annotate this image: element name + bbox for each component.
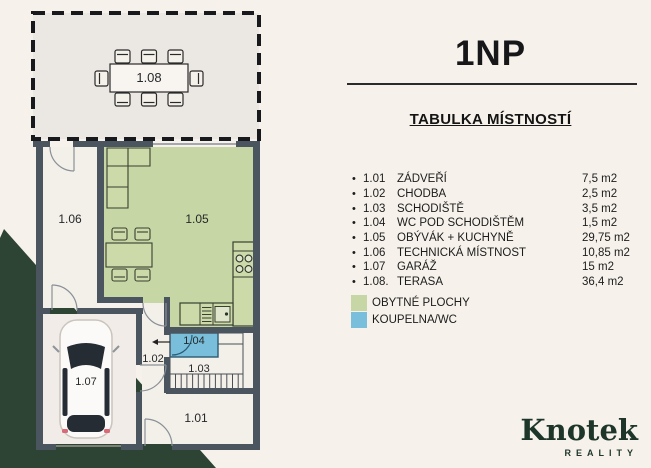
- table-row: • 1.07 GARÁŽ 15 m2: [352, 260, 643, 275]
- page-title: 1NP: [330, 36, 651, 71]
- table-row: • 1.04 WC POD SCHODIŠTĚM 1,5 m2: [352, 216, 643, 231]
- room-area: 2,5 m2: [582, 188, 651, 200]
- room-name: TECHNICKÁ MÍSTNOST: [397, 247, 582, 259]
- brand-subtitle: REALITY: [520, 448, 638, 458]
- table-row: • 1.06 TECHNICKÁ MÍSTNOST 10,85 m2: [352, 245, 643, 260]
- room-number: 1.08.: [363, 276, 397, 288]
- bullet-icon: •: [352, 276, 363, 288]
- room-number: 1.01: [363, 173, 397, 185]
- room-area: 10,85 m2: [582, 247, 651, 259]
- room-area: 29,75 m2: [582, 232, 651, 244]
- room-number: 1.07: [363, 261, 397, 273]
- title-divider: [347, 83, 637, 85]
- page: 1.08: [0, 0, 651, 468]
- room-name: TERASA: [397, 276, 582, 288]
- room-number: 1.05: [363, 232, 397, 244]
- label-wc: 1.04: [183, 335, 204, 347]
- bullet-icon: •: [352, 217, 363, 229]
- room-area: 7,5 m2: [582, 173, 651, 185]
- table-row: • 1.03 SCHODIŠTĚ 3,5 m2: [352, 201, 643, 216]
- label-entry: 1.01: [184, 411, 208, 425]
- bullet-icon: •: [352, 261, 363, 273]
- room-name: SCHODIŠTĚ: [397, 203, 582, 215]
- sink-icon: [215, 307, 230, 323]
- table-row: • 1.05 OBÝVÁK + KUCHYNĚ 29,75 m2: [352, 231, 643, 246]
- legend-swatch: [351, 295, 367, 311]
- table-row: • 1.08. TERASA 36,4 m2: [352, 275, 643, 290]
- room-area: 36,4 m2: [582, 276, 651, 288]
- room-name: OBÝVÁK + KUCHYNĚ: [397, 232, 582, 244]
- label-terrace: 1.08: [136, 70, 161, 85]
- bullet-icon: •: [352, 247, 363, 259]
- legend-swatch: [351, 312, 367, 328]
- room-number: 1.06: [363, 247, 397, 259]
- room-number: 1.03: [363, 203, 397, 215]
- table-row: • 1.01 ZÁDVEŘÍ 7,5 m2: [352, 172, 643, 187]
- room-number: 1.04: [363, 217, 397, 229]
- room-name: ZÁDVEŘÍ: [397, 173, 582, 185]
- label-living: 1.05: [185, 212, 209, 226]
- floorplan: 1.08: [0, 0, 330, 468]
- legend-row: KOUPELNA/WC: [351, 312, 651, 329]
- label-technical: 1.06: [58, 212, 82, 226]
- room-area: 15 m2: [582, 261, 651, 273]
- room-name: CHODBA: [397, 188, 582, 200]
- brand-logo: Knotek REALITY: [520, 416, 638, 458]
- bullet-icon: •: [352, 188, 363, 200]
- room-area: 3,5 m2: [582, 203, 651, 215]
- legend-label: KOUPELNA/WC: [372, 314, 457, 326]
- room-name: GARÁŽ: [397, 261, 582, 273]
- table-row: • 1.02 CHODBA 2,5 m2: [352, 187, 643, 202]
- room-list: • 1.01 ZÁDVEŘÍ 7,5 m2 • 1.02 CHODBA 2,5 …: [330, 172, 651, 290]
- bullet-icon: •: [352, 173, 363, 185]
- bullet-icon: •: [352, 203, 363, 215]
- legend-row: OBYTNÉ PLOCHY: [351, 295, 651, 312]
- room-name: WC POD SCHODIŠTĚM: [397, 217, 582, 229]
- label-garage: 1.07: [75, 376, 96, 388]
- info-panel: 1NP TABULKA MÍSTNOSTÍ • 1.01 ZÁDVEŘÍ 7,5…: [330, 0, 651, 468]
- label-stairs: 1.03: [188, 363, 209, 375]
- table-heading: TABULKA MÍSTNOSTÍ: [330, 111, 651, 128]
- legend: OBYTNÉ PLOCHY KOUPELNA/WC: [330, 295, 651, 329]
- label-hallway: 1.02: [142, 353, 163, 365]
- room-terrace: 1.08: [33, 13, 259, 139]
- room-number: 1.02: [363, 188, 397, 200]
- room-area: 1,5 m2: [582, 217, 651, 229]
- bullet-icon: •: [352, 232, 363, 244]
- brand-name: Knotek: [520, 416, 638, 445]
- legend-label: OBYTNÉ PLOCHY: [372, 297, 470, 309]
